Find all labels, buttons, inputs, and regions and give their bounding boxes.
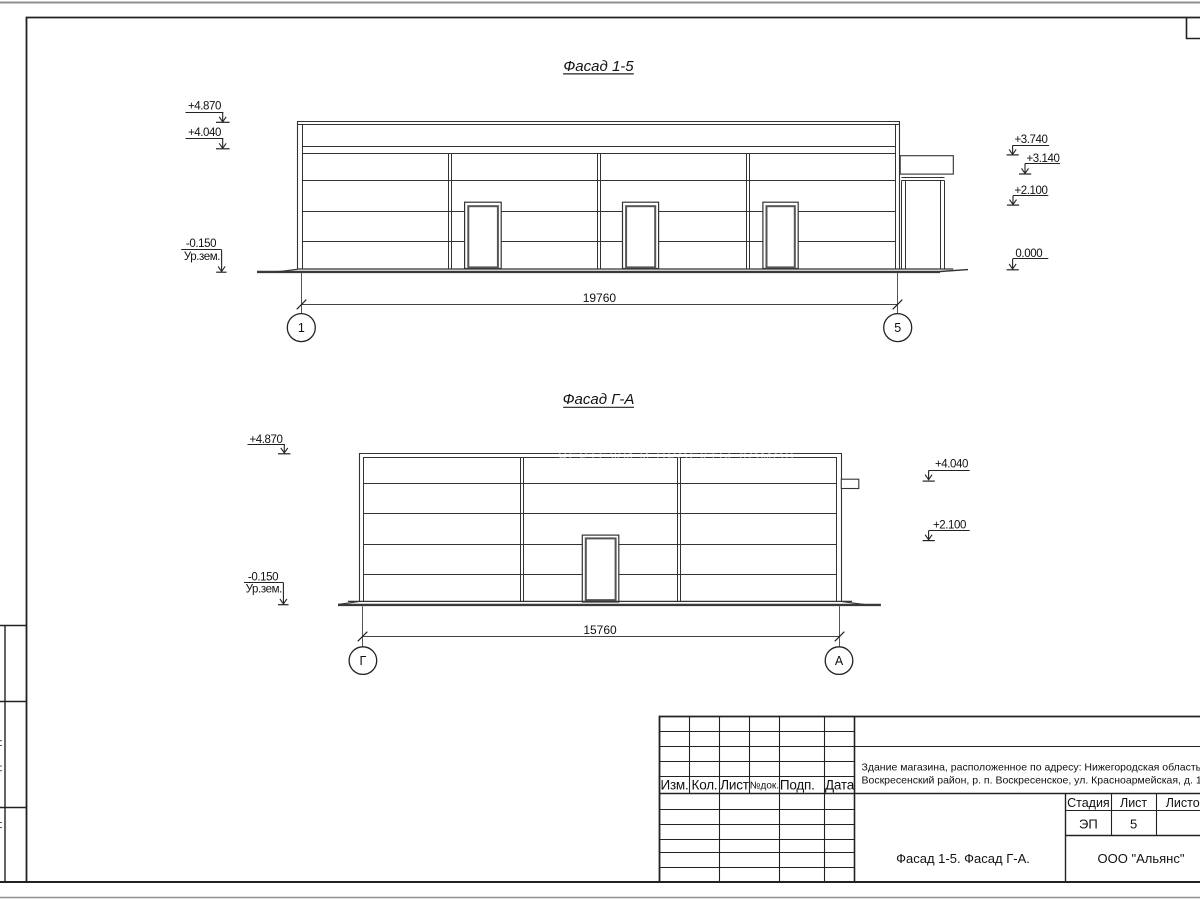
- svg-text:Воскресенский район, р. п. Вос: Воскресенский район, р. п. Воскресенское…: [862, 775, 1200, 787]
- svg-text:А: А: [835, 654, 844, 668]
- svg-text:1: 1: [298, 321, 305, 335]
- svg-text:Кол.: Кол.: [692, 777, 718, 792]
- svg-text:Ур.зем.: Ур.зем.: [184, 251, 220, 263]
- svg-text:15760: 15760: [583, 623, 617, 637]
- svg-text:Фасад 1-5: Фасад 1-5: [563, 58, 634, 75]
- svg-text:ЧЕРТЕЖИ И ПРОЕКТЫ ДОМОВ: ЧЕРТЕЖИ И ПРОЕКТЫ ДОМОВ: [558, 450, 796, 465]
- svg-text:Дата: Дата: [825, 777, 855, 792]
- svg-text:Подп.: Подп.: [780, 777, 815, 792]
- svg-text:+4.040: +4.040: [188, 127, 221, 139]
- svg-text:№док.: №док.: [750, 780, 779, 791]
- svg-text:Г: Г: [360, 654, 367, 668]
- svg-text:-0.150: -0.150: [248, 571, 278, 583]
- svg-text:+4.040: +4.040: [935, 459, 968, 471]
- svg-text:Стадия: Стадия: [1067, 796, 1110, 810]
- svg-text:Подп. и дата: Подп. и дата: [0, 724, 3, 783]
- svg-text:Изм.: Изм.: [660, 777, 688, 792]
- svg-text:Лист: Лист: [1120, 796, 1147, 810]
- svg-text:5: 5: [894, 321, 901, 335]
- svg-text:+2.100: +2.100: [933, 519, 966, 531]
- svg-text:+4.870: +4.870: [188, 101, 221, 113]
- svg-text:ООО "Альянс": ООО "Альянс": [1098, 851, 1185, 866]
- svg-text:Фасад 1-5. Фасад Г-А.: Фасад 1-5. Фасад Г-А.: [896, 851, 1030, 866]
- svg-text:Лист: Лист: [720, 777, 749, 792]
- svg-text:Фасад Г-А: Фасад Г-А: [563, 391, 635, 408]
- svg-text:+3.740: +3.740: [1014, 134, 1047, 146]
- svg-text:ЭП: ЭП: [1079, 817, 1098, 832]
- svg-text:Взам. инв. №: Взам. инв. №: [0, 632, 3, 694]
- svg-text:Здание магазина, расположенное: Здание магазина, расположенное по адресу…: [862, 761, 1200, 773]
- svg-text:-0.150: -0.150: [186, 238, 216, 250]
- svg-text:5: 5: [1130, 817, 1137, 832]
- svg-text:19760: 19760: [583, 291, 617, 305]
- svg-text:Инв. № подл.: Инв. № подл.: [0, 813, 3, 875]
- svg-text:Листов: Листов: [1166, 796, 1200, 810]
- svg-text:Ур.зем.: Ур.зем.: [246, 583, 282, 595]
